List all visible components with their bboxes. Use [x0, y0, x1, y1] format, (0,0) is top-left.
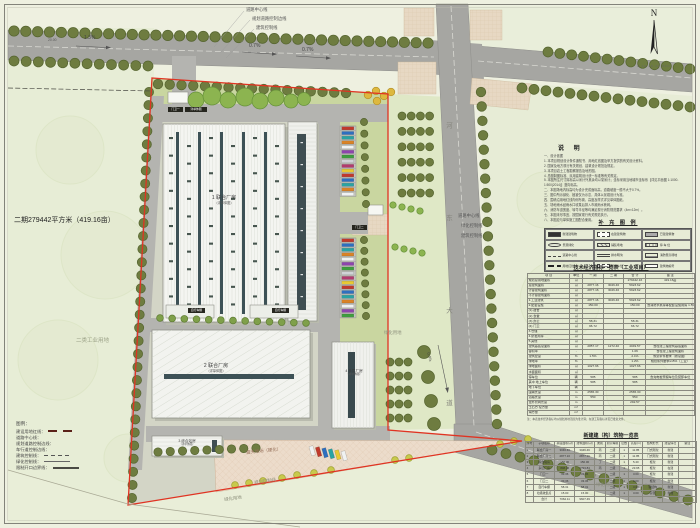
tree	[428, 418, 441, 431]
tree	[198, 31, 208, 41]
tree	[577, 90, 587, 100]
tree	[318, 87, 328, 97]
tree	[426, 189, 434, 197]
tree	[362, 291, 369, 298]
tree	[579, 51, 589, 61]
tree	[132, 376, 141, 385]
tree	[188, 81, 198, 91]
parked-car	[342, 164, 354, 167]
roof-vent	[253, 137, 257, 139]
roof-vent	[169, 225, 173, 227]
tree	[613, 94, 623, 104]
tree	[141, 166, 150, 175]
tree	[269, 33, 279, 43]
roof-vent	[187, 251, 191, 253]
tree	[360, 236, 367, 243]
parked-car	[342, 258, 354, 261]
tree	[266, 318, 273, 325]
roof-vent	[231, 145, 235, 147]
tree	[203, 87, 221, 105]
tree	[685, 64, 695, 74]
tree	[169, 315, 176, 322]
roof-vent	[275, 163, 279, 165]
tree	[407, 127, 415, 135]
double-symbol	[597, 254, 610, 256]
roof-vent	[231, 233, 235, 235]
parked-car	[342, 179, 354, 182]
tree	[395, 400, 403, 408]
tree	[203, 446, 211, 454]
tree	[567, 50, 577, 60]
tree	[416, 158, 424, 166]
tree	[555, 48, 565, 58]
phase2-area-label: 二期279442平方米（419.16亩）	[14, 217, 115, 224]
tree	[361, 130, 368, 137]
roof-vent	[253, 207, 257, 209]
tree	[141, 179, 150, 188]
building-4-core	[348, 352, 355, 418]
tree	[361, 269, 368, 276]
parked-car	[342, 160, 354, 163]
tree	[188, 92, 204, 108]
blob-symbol	[548, 243, 561, 248]
roof-vent	[209, 190, 213, 192]
tree	[423, 38, 433, 48]
tree	[673, 101, 683, 111]
tree	[398, 112, 406, 120]
sup-legend-item: 景观绿化	[545, 240, 594, 251]
tree	[404, 400, 412, 408]
roof-vent	[275, 215, 279, 217]
gray-symbol	[645, 232, 658, 237]
tree	[163, 30, 173, 40]
tree	[399, 37, 409, 47]
tree	[174, 31, 184, 41]
tree	[387, 37, 397, 47]
building-3-label: 3 综合站房（详单体图）	[162, 439, 212, 446]
tree	[362, 200, 369, 207]
tree	[236, 88, 254, 106]
gatehouse-2-chip: 门卫二	[352, 225, 367, 230]
roof-vent	[253, 295, 257, 297]
tree	[398, 189, 406, 197]
tree	[33, 57, 43, 67]
sup-legend-title: 补 充 图 例	[544, 219, 692, 226]
tree	[278, 319, 285, 326]
roof-vent	[187, 268, 191, 270]
roof-vent	[187, 286, 191, 288]
roof-vent	[209, 225, 213, 227]
building-2-skylight	[164, 374, 294, 379]
sup-legend-item: 铺装场地	[594, 240, 643, 251]
roof-vent	[209, 260, 213, 262]
roof-vent	[231, 180, 235, 182]
tree	[553, 87, 563, 97]
tree	[407, 143, 415, 151]
tree	[484, 246, 494, 256]
roof-vent	[169, 190, 173, 192]
roof-vent	[169, 172, 173, 174]
tree	[103, 29, 113, 39]
roof-vent	[275, 198, 279, 200]
tree	[416, 127, 424, 135]
tree	[143, 61, 153, 71]
sup-legend-item: 消防登高场地	[642, 250, 691, 261]
roof-vent	[169, 155, 173, 157]
label-road-centerline: 道路中心线	[246, 8, 267, 12]
slope-label-1: 1.3%	[84, 36, 95, 41]
table-row: 合计7062.119607.49	[526, 497, 697, 503]
roof-vent	[275, 145, 279, 147]
parked-car	[342, 314, 354, 317]
tree	[220, 92, 236, 108]
roof-vent	[253, 172, 257, 174]
tree	[210, 32, 220, 42]
tree	[416, 112, 424, 120]
solid-symbol	[548, 232, 561, 237]
parked-car	[342, 132, 354, 135]
parked-car	[342, 286, 354, 289]
roof-vent	[209, 243, 213, 245]
tree	[416, 189, 424, 197]
roof-vent	[231, 163, 235, 165]
tree	[529, 84, 539, 94]
notes-title: 说 明	[558, 143, 696, 152]
new-buildings-table: 新建建（构）筑物一览表 序号子项名称基底面积(㎡)建筑面积(㎡)类别耐火等级层数…	[525, 432, 697, 503]
tree	[135, 310, 144, 319]
tree	[478, 116, 488, 126]
tree	[386, 400, 394, 408]
sup-legend-item: 在建建筑物	[594, 229, 643, 240]
slope-label-3: 0.7%	[302, 48, 313, 53]
sup-legend-item: 已建建筑物	[642, 229, 691, 240]
tree	[268, 90, 284, 106]
dashdot-symbol	[548, 256, 561, 257]
tree	[417, 208, 423, 214]
tree	[361, 142, 368, 149]
tree	[411, 37, 421, 47]
parked-car	[342, 150, 354, 153]
table-row: 填方量m³	[528, 411, 695, 416]
plan-legend: 图例： 建设用地红线：道路中心线：规划道路控制边线：车行道控制边线：建筑控制线：…	[16, 421, 156, 471]
road-width-label: 20.00	[48, 39, 57, 42]
parked-car	[342, 193, 354, 196]
tree	[290, 319, 297, 326]
tree	[485, 260, 495, 270]
table2-title: 新建建（构）筑物一览表	[525, 432, 697, 439]
tree	[305, 34, 315, 44]
tree	[56, 27, 66, 37]
tree	[685, 102, 695, 112]
parked-car	[342, 155, 354, 158]
label-building-control-e: 建筑控制线	[461, 234, 482, 238]
tree	[144, 100, 153, 109]
vegetation-outline	[36, 116, 104, 184]
parked-car	[342, 174, 354, 177]
tree	[401, 246, 407, 252]
notes-block: 说 明 一、设计依据1. 本项目规划设计条件通知书、用地红线图及甲方提供的有关设…	[544, 143, 696, 222]
note-line: 5. 本图所注尺寸除标高以米计外其余均以毫米计；坐标采用当地城市坐标系【详见平面…	[544, 178, 696, 188]
tree	[480, 174, 490, 184]
tree	[590, 53, 600, 63]
label-green-control-e: 绿化控制线	[461, 224, 482, 228]
tree	[407, 158, 415, 166]
roof-vent	[169, 243, 173, 245]
tree	[191, 446, 199, 454]
building-2	[152, 330, 313, 421]
tree	[487, 318, 497, 328]
tree	[281, 34, 291, 44]
tree	[257, 33, 267, 43]
tree	[637, 97, 647, 107]
tree	[416, 174, 424, 182]
roof-vent	[169, 207, 173, 209]
tree	[9, 56, 19, 66]
tree	[46, 57, 56, 67]
building-4	[332, 342, 376, 430]
tree	[386, 372, 394, 380]
tree	[44, 27, 54, 37]
tree	[143, 114, 152, 123]
tree	[329, 88, 339, 98]
tree	[352, 36, 362, 46]
tree	[541, 86, 551, 96]
tree	[362, 302, 369, 309]
label-planned-road-control: 规划道路控制边线	[252, 17, 286, 21]
tree	[303, 320, 310, 327]
tree	[386, 358, 394, 366]
roof-vent	[275, 233, 279, 235]
north-letter: N	[622, 8, 686, 18]
tree	[399, 204, 405, 210]
tree	[404, 386, 412, 394]
tree	[501, 449, 511, 459]
tree	[134, 336, 143, 345]
tree	[360, 118, 367, 125]
vegetation-outline	[61, 211, 149, 299]
gatehouse-1-chip: 门卫一	[168, 107, 183, 112]
tree	[21, 56, 31, 66]
roof-vent	[253, 225, 257, 227]
tree	[115, 29, 125, 39]
roof-vent	[187, 233, 191, 235]
tree	[127, 29, 137, 39]
building-1	[163, 124, 285, 322]
tree	[362, 280, 369, 287]
bike-shed-1-chip: 自行车棚	[188, 308, 205, 313]
table1-title: 技术经济指标一览表（工业项目）	[527, 264, 695, 271]
tree	[143, 127, 152, 136]
tree	[482, 203, 492, 213]
tree	[425, 395, 438, 408]
tree	[242, 318, 249, 325]
roof-vent	[209, 207, 213, 209]
parked-car	[342, 244, 354, 247]
plan-legend-item: 限制开口边界线：	[16, 465, 156, 471]
tree	[398, 174, 406, 182]
land-use-label: 二类工业用地	[76, 339, 109, 345]
tree	[166, 447, 174, 455]
tree	[491, 390, 501, 400]
north-arrow: N 0 10 20 40 80m	[622, 8, 686, 68]
tree	[488, 333, 498, 343]
tree	[252, 93, 268, 109]
building-4-label: 4 多层厂房（详单体图）	[334, 369, 374, 376]
tree	[328, 35, 338, 45]
tree	[254, 318, 261, 325]
tree	[139, 30, 149, 40]
tree	[32, 26, 42, 36]
sup-legend-item: 道路中心线	[545, 250, 594, 261]
tree	[398, 158, 406, 166]
tree	[419, 250, 425, 256]
parked-car	[342, 239, 354, 242]
tree	[133, 349, 142, 358]
tree	[82, 59, 92, 69]
tree	[661, 99, 671, 109]
tree	[602, 54, 612, 64]
tree	[362, 189, 369, 196]
east-entrance-drive	[338, 212, 368, 234]
tree	[131, 402, 140, 411]
roof-vent	[187, 215, 191, 217]
tree	[395, 372, 403, 380]
parked-car	[342, 141, 354, 144]
tree	[395, 358, 403, 366]
parked-car	[342, 309, 354, 312]
tech-economic-indicator-table: 技术经济指标一览表（工业项目） 项 目单位一 期二 期合 计备 注规划总用地面积…	[527, 264, 695, 421]
tree	[245, 33, 255, 43]
tree	[416, 143, 424, 151]
tree	[426, 112, 434, 120]
roof-vent	[231, 215, 235, 217]
tree	[478, 131, 488, 141]
tree	[165, 80, 175, 90]
tree	[487, 304, 497, 314]
tree	[361, 258, 368, 265]
tree	[181, 315, 188, 322]
tree	[490, 376, 500, 386]
gatehouse-1	[168, 92, 188, 103]
parked-car	[342, 305, 354, 308]
north-needle	[622, 18, 686, 58]
tree	[186, 31, 196, 41]
roof-vent	[187, 163, 191, 165]
tree	[483, 232, 493, 242]
roof-vent	[231, 251, 235, 253]
tree	[9, 26, 19, 36]
roof-vent	[231, 303, 235, 305]
roof-vent	[169, 137, 173, 139]
parked-car	[342, 300, 354, 303]
parked-car	[342, 295, 354, 298]
tree	[178, 447, 186, 455]
tree	[373, 97, 381, 105]
tree	[565, 88, 575, 98]
tree	[407, 112, 415, 120]
roof-vent	[231, 286, 235, 288]
tree	[407, 189, 415, 197]
dash-symbol	[597, 232, 610, 237]
tree	[476, 87, 486, 97]
tree	[361, 154, 368, 161]
tree	[157, 315, 164, 322]
parked-car	[342, 248, 354, 251]
sup-legend-item: 排水明沟	[594, 250, 643, 261]
tree	[625, 95, 635, 105]
tree	[408, 206, 414, 212]
scale-bar-text: 0 10 20 40 80m	[622, 64, 686, 68]
ticks-symbol	[645, 253, 658, 258]
tree	[144, 87, 153, 96]
tree	[404, 358, 412, 366]
tree	[480, 159, 490, 169]
tree	[482, 217, 492, 227]
roof-vent	[275, 268, 279, 270]
tree	[215, 445, 223, 453]
tree	[392, 244, 398, 250]
tree	[489, 347, 499, 357]
parked-car	[342, 281, 354, 284]
building-1-label: 1 联合厂房（详单体图）	[186, 196, 262, 205]
parked-car	[342, 291, 354, 294]
tree	[395, 414, 403, 422]
tree	[492, 405, 502, 415]
tree	[293, 34, 303, 44]
parked-car	[342, 276, 354, 279]
tree	[543, 47, 553, 57]
tree	[94, 59, 104, 69]
roof-vent	[275, 180, 279, 182]
tree	[227, 445, 235, 453]
roof-vent	[209, 295, 213, 297]
parked-car	[342, 262, 354, 265]
parked-car	[342, 169, 354, 172]
parked-car	[342, 188, 354, 191]
plan-legend-title: 图例：	[16, 421, 156, 427]
tree	[398, 127, 406, 135]
tree	[177, 80, 187, 90]
sup-legend-item: 新建建筑物	[545, 229, 594, 240]
tree	[133, 362, 142, 371]
tree	[135, 323, 144, 332]
tree	[222, 32, 232, 42]
tree	[361, 247, 368, 254]
tree	[217, 317, 224, 324]
tree	[375, 36, 385, 46]
tree	[479, 145, 489, 155]
label-building-control: 建筑控制线	[256, 26, 277, 30]
label-road-centerline-e: 道路中心线	[458, 214, 479, 218]
table1-footnote: 注：本表技术经济指标均以规划用地范围为准计算；在建工程指标详见已批复文件。	[527, 417, 695, 421]
roof-vent	[275, 251, 279, 253]
tree	[426, 174, 434, 182]
roof-vent	[253, 155, 257, 157]
tree	[205, 316, 212, 323]
tree	[601, 93, 611, 103]
tree	[486, 289, 496, 299]
slope-label-2: 0.7%	[249, 44, 260, 49]
tree	[492, 419, 502, 429]
bike-shed-2-chip: 自行车棚	[272, 308, 289, 313]
tree	[489, 361, 499, 371]
sup-legend-item: 停 车 位	[642, 240, 691, 251]
parked-car	[342, 136, 354, 139]
tree	[58, 58, 68, 68]
tree	[284, 94, 298, 108]
tree	[362, 177, 369, 184]
tree	[68, 28, 78, 38]
